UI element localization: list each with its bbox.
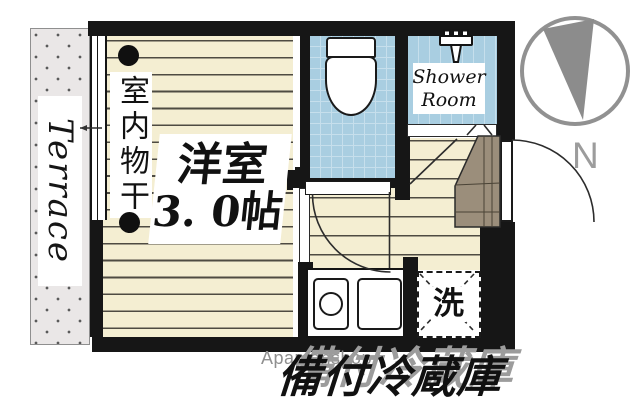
shower-door bbox=[407, 124, 497, 137]
floorplan-canvas: Terrace Shower Room bbox=[0, 0, 640, 408]
kitchen-sink bbox=[357, 278, 402, 330]
wall-counter-right bbox=[403, 257, 418, 338]
wall-top bbox=[88, 21, 515, 36]
shower-room-label: Shower Room bbox=[413, 63, 485, 114]
indoor-drying-label: 室内物干 bbox=[110, 72, 152, 218]
compass-north-label: N bbox=[572, 135, 599, 176]
toilet-bowl bbox=[325, 56, 377, 116]
terrace-label-text: Terrace bbox=[40, 118, 80, 264]
room-label: 洋室 3. 0帖 bbox=[148, 134, 292, 244]
terrace-window bbox=[90, 36, 107, 220]
entrance-door bbox=[500, 140, 513, 222]
laundry-hook-dot-bottom bbox=[119, 212, 140, 233]
shower-label-line1: Shower bbox=[412, 66, 485, 89]
wall-right-block bbox=[480, 225, 513, 352]
indoor-drying-text: 室内物干 bbox=[116, 75, 146, 215]
laundry-hook-dot-top bbox=[118, 45, 139, 66]
toilet-door bbox=[305, 181, 391, 195]
compass-circle bbox=[522, 18, 628, 124]
terrace-label: Terrace bbox=[38, 96, 82, 286]
washer-label: 洗 bbox=[431, 287, 466, 322]
burner-circle-icon bbox=[319, 292, 343, 316]
compass-needle bbox=[543, 19, 594, 120]
wall-left-lower bbox=[90, 220, 103, 337]
entrance-door-swing-arc bbox=[512, 140, 594, 222]
toilet-room bbox=[310, 36, 395, 178]
shower-label-line2: Room bbox=[421, 89, 476, 112]
kitchen-counter bbox=[306, 268, 405, 338]
room-size-text: 3. 0帖 bbox=[150, 188, 285, 236]
window-center-rail bbox=[97, 36, 99, 220]
toilet-tank bbox=[326, 37, 376, 58]
room-name-text: 洋室 bbox=[175, 142, 270, 188]
wall-right-upper bbox=[497, 22, 515, 140]
caption-refrigerator: 備付冷蔵庫 bbox=[275, 356, 503, 400]
compass: N bbox=[522, 18, 628, 176]
stove-burner bbox=[313, 278, 349, 330]
